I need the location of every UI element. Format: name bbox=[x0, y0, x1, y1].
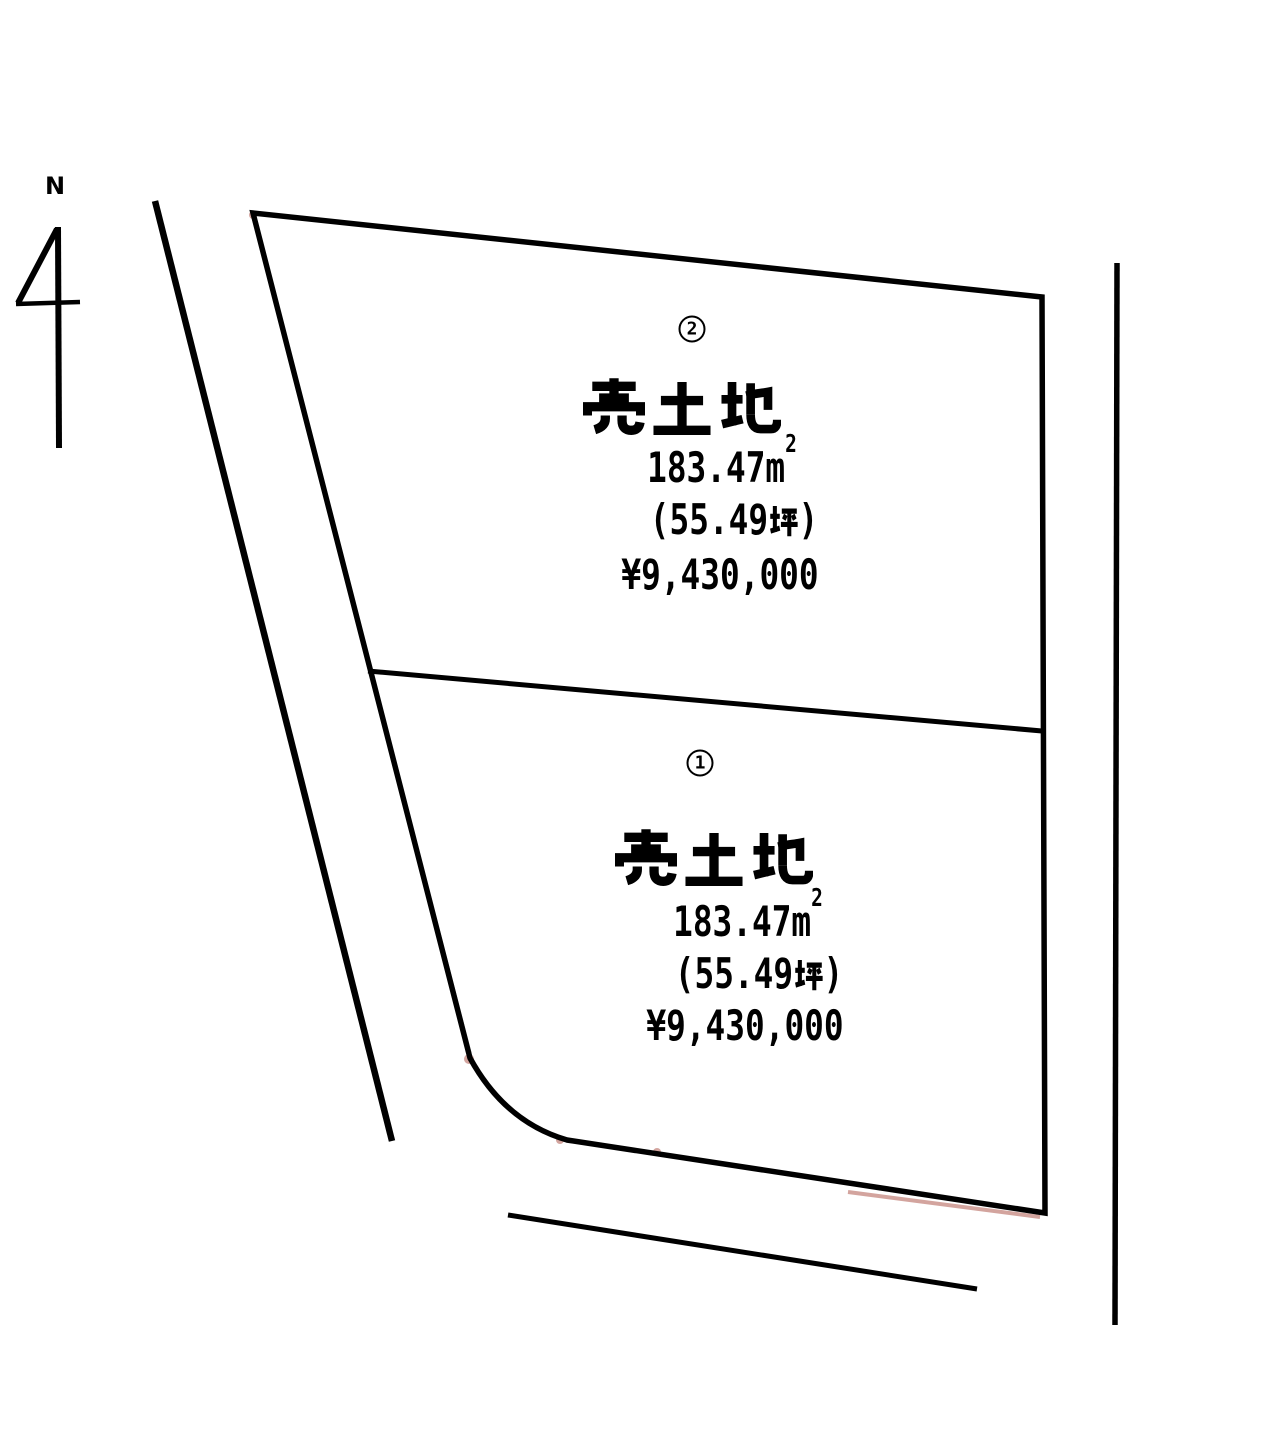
land-plan: N 2 183.47m2 (55.49 ) ¥9,430,000 1 183.4… bbox=[0, 0, 1267, 1454]
area-value: 183.47 bbox=[647, 443, 765, 492]
tsubo-line: (55.49 ) bbox=[650, 499, 818, 541]
plot-title bbox=[583, 377, 781, 439]
road-edge-left bbox=[155, 201, 392, 1141]
scan-artifact-marks bbox=[249, 211, 1040, 1217]
plot-number-badge: 1 bbox=[687, 750, 714, 777]
boundary-line-right bbox=[1115, 263, 1117, 1325]
tsubo-close-paren: ) bbox=[824, 953, 844, 995]
tsubo-close-paren: ) bbox=[799, 499, 819, 541]
area-unit-exponent: 2 bbox=[785, 429, 797, 458]
kanji-chi bbox=[751, 828, 813, 890]
area-unit-exponent: 2 bbox=[811, 883, 823, 912]
kanji-to bbox=[683, 828, 745, 890]
plot-title bbox=[615, 828, 813, 890]
tsubo-value: (55.49 bbox=[650, 499, 768, 541]
area-unit: m bbox=[765, 443, 785, 492]
area-line: 183.47m2 bbox=[647, 447, 797, 489]
north-arrow bbox=[16, 227, 80, 448]
price-line: ¥9,430,000 bbox=[646, 1005, 843, 1047]
area-line: 183.47m2 bbox=[673, 901, 823, 943]
kanji-uri bbox=[583, 377, 645, 439]
kanji-chi bbox=[719, 377, 781, 439]
area-unit: m bbox=[791, 897, 811, 946]
kanji-to bbox=[651, 377, 713, 439]
kanji-tsubo bbox=[769, 503, 798, 540]
kanji-uri bbox=[615, 828, 677, 890]
parcel-divider-line bbox=[368, 671, 1042, 731]
tsubo-value: (55.49 bbox=[675, 953, 793, 995]
road-edge-bottom bbox=[508, 1215, 977, 1289]
plan-linework bbox=[0, 0, 1267, 1454]
plot-number-badge: 2 bbox=[679, 316, 706, 343]
price-line: ¥9,430,000 bbox=[621, 554, 818, 596]
north-label: N bbox=[45, 172, 65, 200]
tsubo-line: (55.49 ) bbox=[675, 953, 843, 995]
area-value: 183.47 bbox=[673, 897, 791, 946]
kanji-tsubo bbox=[794, 957, 823, 994]
